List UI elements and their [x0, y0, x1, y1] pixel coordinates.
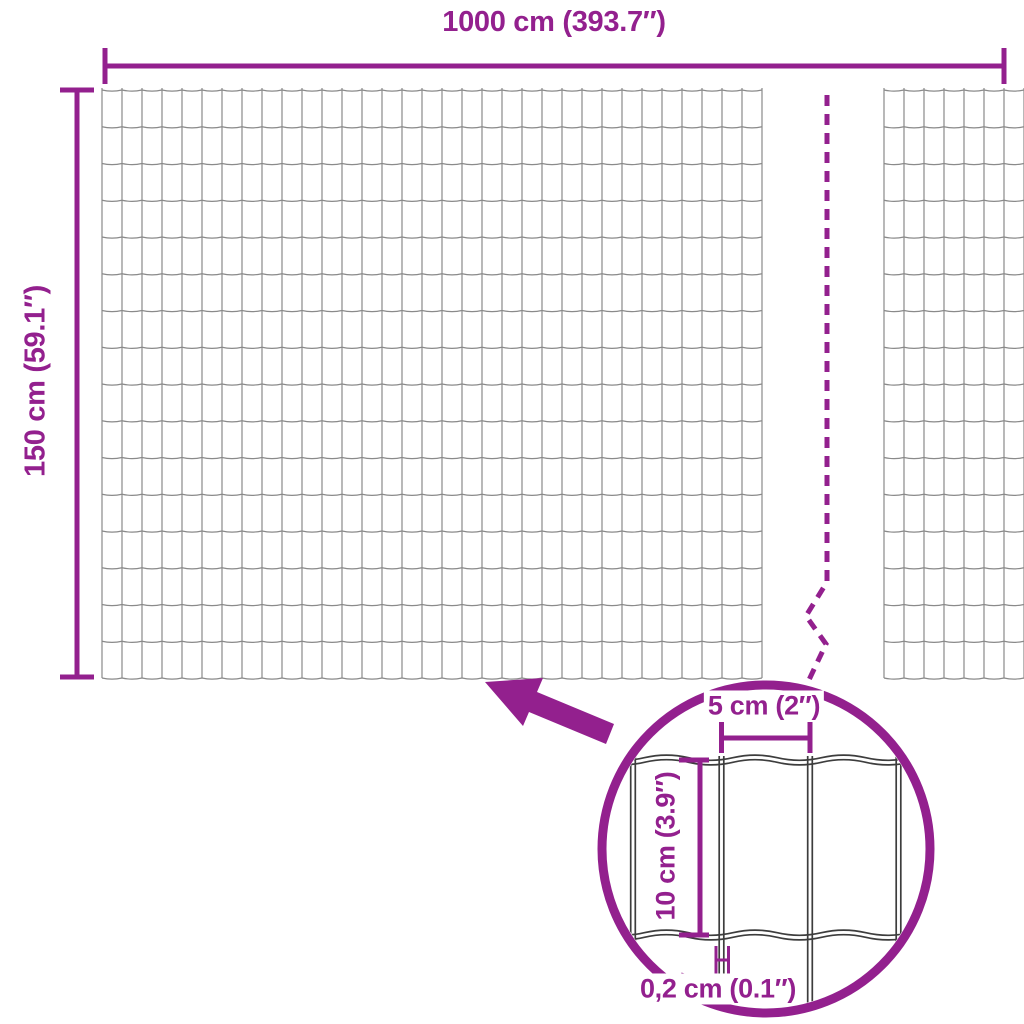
width-dimension-line	[105, 48, 1004, 84]
product-dimension-diagram: 1000 cm (393.7″) 150 cm (59.1″) 5 cm (2″…	[0, 0, 1024, 1024]
break-dashed-line	[806, 95, 827, 684]
mesh-cell-height-label: 10 cm (3.9″)	[650, 772, 681, 921]
height-dimension-line	[60, 90, 94, 677]
fence-mesh-right	[884, 88, 1024, 679]
total-height-label: 150 cm (59.1″)	[19, 285, 52, 477]
diagram-canvas	[0, 0, 1024, 1024]
mesh-cell-width-label: 5 cm (2″)	[704, 690, 824, 721]
fence-mesh-left	[102, 88, 762, 679]
total-width-label: 1000 cm (393.7″)	[104, 6, 1004, 39]
zoom-arrow-icon	[485, 678, 614, 744]
wire-thickness-label: 0,2 cm (0.1″)	[637, 973, 799, 1004]
